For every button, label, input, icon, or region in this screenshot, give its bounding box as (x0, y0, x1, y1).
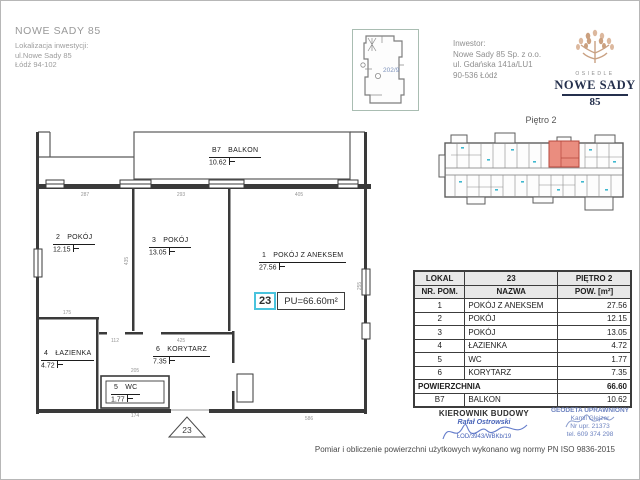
cell-pow: 27.56 (558, 299, 631, 313)
site-plan-drawing: 202/9 (352, 29, 419, 111)
dim-tick-icon (57, 361, 65, 368)
parcel-number: 202/9 (383, 67, 400, 74)
table-row: 1 POKÓJ Z ANEKSEM 27.56 (414, 299, 631, 313)
location-city: Łódź 94-102 (15, 60, 101, 70)
cell-nr: B7 (414, 393, 465, 407)
svg-text:174: 174 (131, 413, 140, 419)
location-label: Lokalizacja inwestycji: (15, 41, 101, 51)
cell-pow: 7.35 (558, 366, 631, 380)
investor-name: Nowe Sady 85 Sp. z o.o. (453, 50, 541, 61)
cell-nr: 3 (414, 326, 465, 340)
document-page: NOWE SADY 85 Lokalizacja inwestycji: ul.… (0, 0, 640, 480)
usable-area-value: PU=66.60m² (277, 292, 345, 310)
room-label-korytarz: 6KORYTARZ 7.35 (153, 346, 210, 366)
area-table: LOKAL 23 PIĘTRO 2 NR. POM. NAZWA POW. [m… (413, 270, 632, 408)
floor-overview-plan (437, 125, 632, 225)
dim-tick-icon (279, 263, 287, 270)
dim-tick-icon (229, 158, 237, 165)
surveyor-signature: GEODETA UPRAWNIONY Kamil Glejzer Nr upr.… (542, 407, 638, 439)
svg-text:112: 112 (111, 338, 119, 344)
signature-scribble-icon (435, 417, 535, 445)
cell-name: WC (465, 353, 558, 367)
table-row: 4 ŁAZIENKA 4.72 (414, 339, 631, 353)
floor-overview-title: Piętro 2 (501, 115, 581, 125)
location-street: ul.Nowe Sady 85 (15, 51, 101, 61)
svg-text:425: 425 (177, 338, 186, 344)
entrance-marker-number: 23 (182, 425, 192, 435)
lokal-label: LOKAL (414, 271, 465, 285)
table-row: 5 WC 1.77 (414, 353, 631, 367)
table-row: 3 POKÓJ 13.05 (414, 326, 631, 340)
svg-text:435: 435 (124, 257, 130, 266)
svg-text:586: 586 (305, 416, 314, 422)
cell-pow: 1.77 (558, 353, 631, 367)
total-value: 66.60 (558, 380, 631, 394)
investor-city: 90-536 Łódź (453, 71, 541, 82)
investor-label: Inwestor: (453, 39, 541, 50)
col-nr: NR. POM. (414, 285, 465, 299)
svg-text:405: 405 (295, 192, 304, 198)
col-pow: POW. [m²] (558, 285, 631, 299)
table-row-balkon: B7 BALKON 10.62 (414, 393, 631, 407)
investor-street: ul. Gdańska 141a/LU1 (453, 60, 541, 71)
total-label: POWIERZCHNIA (414, 380, 558, 394)
lokal-value: 23 (465, 271, 558, 285)
cell-nr: 4 (414, 339, 465, 353)
dim-tick-icon (127, 395, 135, 402)
tree-icon (573, 29, 617, 65)
cell-nr: 1 (414, 299, 465, 313)
project-title: NOWE SADY 85 (15, 25, 101, 37)
unit-number-badge: 23 (254, 292, 276, 310)
investor-block: Inwestor: Nowe Sady 85 Sp. z o.o. ul. Gd… (453, 39, 541, 81)
header-block: NOWE SADY 85 Lokalizacja inwestycji: ul.… (15, 25, 101, 70)
logo-name: NOWE SADY (551, 78, 639, 93)
cell-nr: 5 (414, 353, 465, 367)
table-row: NR. POM. NAZWA POW. [m²] (414, 285, 631, 299)
cell-name: KORYTARZ (465, 366, 558, 380)
main-floor-plan-drawing: 23 287 293 405 435 175 112 425 205 174 5… (9, 101, 381, 446)
highlighted-unit (549, 141, 579, 167)
table-row: LOKAL 23 PIĘTRO 2 (414, 271, 631, 285)
logo-estate-label: OSIEDLE (551, 71, 639, 77)
closet-outline (237, 374, 253, 402)
room-label-lazienka: 4ŁAZIENKA 4.72 (41, 350, 94, 370)
floor-overview-drawing (437, 125, 632, 220)
area-table-wrap: LOKAL 23 PIĘTRO 2 NR. POM. NAZWA POW. [m… (413, 270, 632, 408)
cell-name: POKÓJ (465, 312, 558, 326)
cell-pow: 4.72 (558, 339, 631, 353)
dim-tick-icon (73, 245, 81, 252)
cell-nr: 2 (414, 312, 465, 326)
surveyor-phone: tel. 609 374 298 (542, 431, 638, 439)
room-label-pokoj1: 1POKÓJ Z ANEKSEM 27.56 (259, 252, 346, 272)
site-manager-signature: KIEROWNIK BUDOWY Rafał Ostrowski ŁOD/394… (425, 409, 543, 440)
cell-pow: 13.05 (558, 326, 631, 340)
room-label-pokoj3: 3POKÓJ 13.05 (149, 237, 191, 257)
main-floor-plan: 23 287 293 405 435 175 112 425 205 174 5… (9, 101, 381, 451)
cell-name: ŁAZIENKA (465, 339, 558, 353)
table-row-total: POWIERZCHNIA 66.60 (414, 380, 631, 394)
cell-name: BALKON (465, 393, 558, 407)
svg-text:255: 255 (357, 282, 363, 291)
dim-tick-icon (169, 357, 177, 364)
cell-name: POKÓJ (465, 326, 558, 340)
svg-text:175: 175 (63, 310, 72, 316)
svg-text:287: 287 (81, 192, 90, 198)
col-nazwa: NAZWA (465, 285, 558, 299)
unit-area-box: 23 PU=66.60m² (254, 292, 345, 310)
floor-label: PIĘTRO 2 (558, 271, 631, 285)
room-label-pokoj2: 2POKÓJ 12.15 (53, 234, 95, 254)
dim-tick-icon (169, 248, 177, 255)
signature-scribble-icon (560, 411, 620, 431)
cell-pow: 12.15 (558, 312, 631, 326)
estate-logo: OSIEDLE NOWE SADY 85 (551, 29, 639, 108)
table-row: 6 KORYTARZ 7.35 (414, 366, 631, 380)
cell-nr: 6 (414, 366, 465, 380)
room-label-balkon: B7BALKON 10.62 (209, 147, 261, 167)
svg-text:205: 205 (131, 368, 140, 374)
interior-walls (37, 189, 235, 413)
logo-number: 85 (551, 96, 639, 108)
table-row: 2 POKÓJ 12.15 (414, 312, 631, 326)
measurement-norm-note: Pomiar i obliczenie powierzchni użytkowy… (1, 445, 615, 454)
cell-pow: 10.62 (558, 393, 631, 407)
entrance-marker-icon: 23 (169, 417, 205, 437)
svg-text:293: 293 (177, 192, 186, 198)
cell-name: POKÓJ Z ANEKSEM (465, 299, 558, 313)
room-label-wc: 5WC 1.77 (111, 384, 140, 404)
